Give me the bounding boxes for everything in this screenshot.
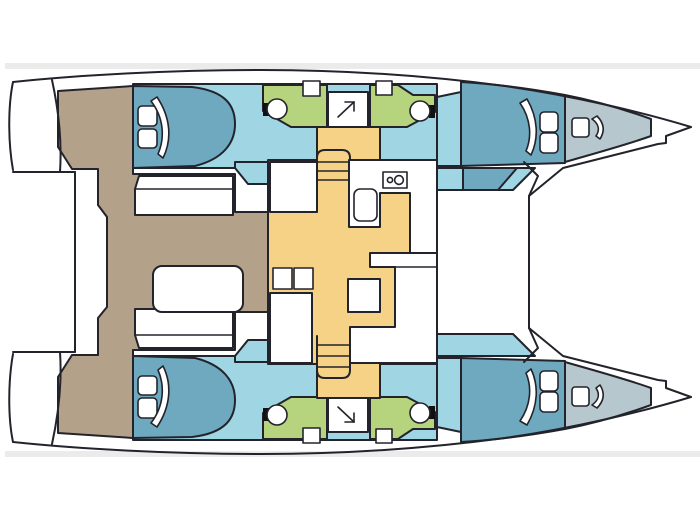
wash-basin-icon [376, 81, 392, 95]
cockpit-forward-bench [135, 309, 233, 348]
wash-basin-icon [303, 81, 320, 96]
top-edge-stripe [5, 63, 700, 69]
starboard-aft-cabin-bed [133, 356, 235, 438]
pillow-icon [138, 376, 157, 395]
starboard-shower [328, 397, 368, 432]
cockpit-aft-bench [135, 176, 233, 215]
pillow-icon [138, 129, 157, 148]
toilet-icon [410, 101, 430, 121]
catamaran-floor-plan [0, 0, 700, 524]
locker [273, 268, 292, 289]
cockpit-table [153, 266, 243, 312]
pillow-icon [540, 133, 558, 153]
deck-hatch-icon [572, 387, 589, 406]
deck-hatch-icon [572, 118, 589, 137]
floor-plan-canvas [0, 0, 700, 524]
toilet-icon [267, 405, 287, 425]
saloon [268, 127, 437, 398]
toilet-icon [410, 403, 430, 423]
pillow-icon [540, 112, 558, 132]
pillow-icon [540, 371, 558, 391]
port-aft-cabin-bed [133, 86, 235, 168]
port-shower [328, 92, 368, 127]
locker [294, 268, 313, 289]
saloon-table [348, 279, 380, 312]
toilet-icon [267, 99, 287, 119]
pillow-icon [540, 392, 558, 412]
wash-basin-icon [376, 429, 392, 443]
starboard-forward-passage [437, 358, 461, 432]
galley-sink-icon [354, 189, 377, 221]
storage-block [270, 293, 312, 363]
port-forward-passage [437, 92, 461, 166]
stove-icon [383, 172, 407, 188]
saloon-cabinet [270, 162, 317, 212]
pillow-icon [138, 398, 157, 418]
pillow-icon [138, 106, 157, 126]
wash-basin-icon [303, 428, 320, 443]
